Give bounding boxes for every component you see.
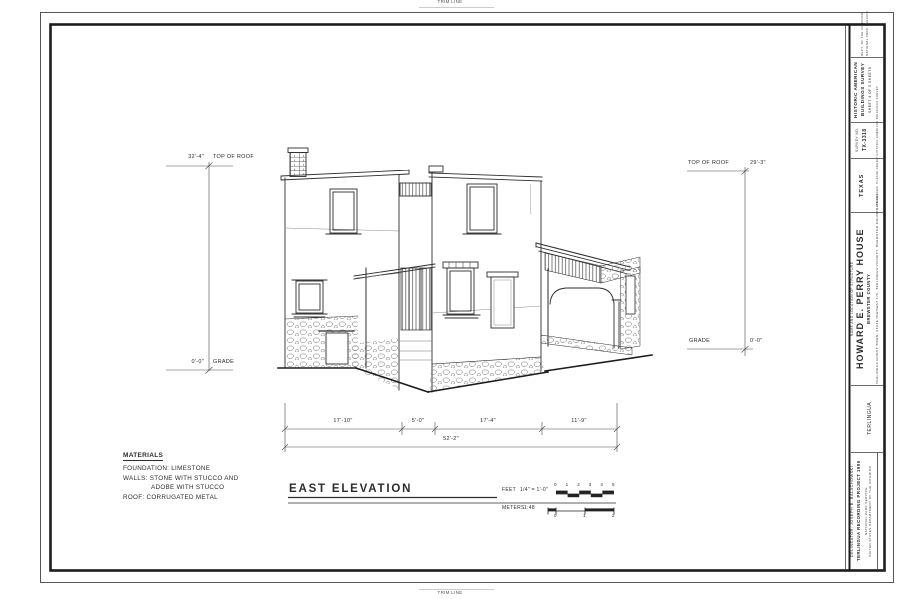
state-label: TEXAS bbox=[860, 160, 866, 210]
scale-feet-value: 1/4" = 1'-0" bbox=[520, 488, 548, 494]
dimension-lines bbox=[166, 162, 753, 452]
structure-name: HOWARD E. PERRY HOUSE bbox=[856, 214, 865, 384]
materials-line: ADOBE WITH STUCCO bbox=[151, 485, 224, 492]
meters-scale-tick: 2 bbox=[612, 514, 615, 519]
materials-heading: MATERIALS bbox=[123, 452, 163, 461]
survey-title-line2: BUILDINGS SURVEY bbox=[861, 58, 866, 121]
town-label: TERLINGUA bbox=[868, 387, 873, 450]
credit-line: UNITED STATES DEPARTMENT OF THE INTERIOR bbox=[869, 455, 872, 567]
structure-county: BREWSTER COUNTY bbox=[867, 214, 871, 384]
meters-scale-tick: 1 bbox=[583, 514, 586, 519]
feet-scale-tick: 3 bbox=[589, 483, 592, 488]
house-elevation-linework bbox=[278, 148, 652, 392]
feet-scale-tick: 2 bbox=[577, 483, 580, 488]
scale-meters-label: METERS bbox=[502, 506, 525, 512]
scale-bars bbox=[548, 491, 614, 515]
sheet-info: SHEET 4 OF 5 SHEETS bbox=[869, 58, 872, 121]
structure-label: NAME AND LOCATION OF STRUCTURE bbox=[851, 214, 854, 384]
materials-line: FOUNDATION: LIMESTONE bbox=[123, 466, 210, 473]
credit-line: TERLINGUA RECORDING PROJECT 1995 bbox=[857, 455, 861, 567]
survey-no: TX-3318 bbox=[863, 123, 868, 157]
right-roof-height-label: TOP OF ROOF bbox=[688, 160, 729, 166]
feet-scale-tick: 4 bbox=[600, 483, 603, 488]
sheet-borders bbox=[41, 8, 894, 590]
right-grade-value: 0'-0" bbox=[750, 338, 762, 344]
sheet-linework bbox=[0, 0, 900, 599]
feet-scale-tick: 1 bbox=[566, 483, 569, 488]
dimension-label: 17'-4" bbox=[450, 418, 526, 424]
materials-line: WALLS: STONE WITH STUCCO AND bbox=[123, 476, 238, 483]
right-roof-height-value: 29'-3" bbox=[750, 160, 766, 166]
scale-meters-value: 1:48 bbox=[524, 506, 535, 512]
left-grade-label: GRADE bbox=[213, 359, 234, 365]
feet-scale-tick: 0 bbox=[554, 483, 557, 488]
dimension-label: 11'-9" bbox=[541, 418, 617, 424]
sheet-title: EAST ELEVATION bbox=[289, 483, 412, 496]
left-roof-height-value: 32'-4" bbox=[166, 154, 204, 160]
right-grade-label: GRADE bbox=[689, 338, 710, 344]
feet-scale-tick: 5 bbox=[612, 483, 615, 488]
left-grade-value: 0'-0" bbox=[166, 359, 204, 365]
scale-feet-label: FEET bbox=[502, 488, 516, 494]
agency-line2: NATIONAL PARK SERVICE bbox=[866, 28, 869, 56]
survey-title-line1: HISTORIC AMERICAN bbox=[854, 58, 859, 121]
trim-line-top-label: TRIM LINE bbox=[438, 0, 463, 5]
dimension-label: 17'-10" bbox=[305, 418, 381, 424]
drawing-sheet: { "sheet": { "trim_top": "TRIM LINE", "t… bbox=[0, 0, 900, 599]
agency-line1: DEPT. OF THE INTERIOR bbox=[861, 28, 864, 56]
survey-no-label: SURVEY NO. bbox=[856, 123, 859, 157]
trim-line-bottom-label: TRIM LINE bbox=[438, 591, 463, 596]
total-dimension-label: 52'-2" bbox=[413, 436, 489, 442]
credit-line: DELINEATOR: JOSEPH B. BALACHOWSKI bbox=[851, 455, 855, 567]
meters-scale-tick: 0 bbox=[554, 514, 557, 519]
materials-line: ROOF: CORRUGATED METAL bbox=[123, 495, 218, 502]
dimension-label: 5'-0" bbox=[398, 418, 438, 424]
title-rules bbox=[288, 498, 616, 504]
structure-address: TERLINGUA GHOST TOWN, STATE HIGHWAY 170,… bbox=[876, 214, 879, 384]
left-roof-height-label: TOP OF ROOF bbox=[213, 154, 254, 160]
